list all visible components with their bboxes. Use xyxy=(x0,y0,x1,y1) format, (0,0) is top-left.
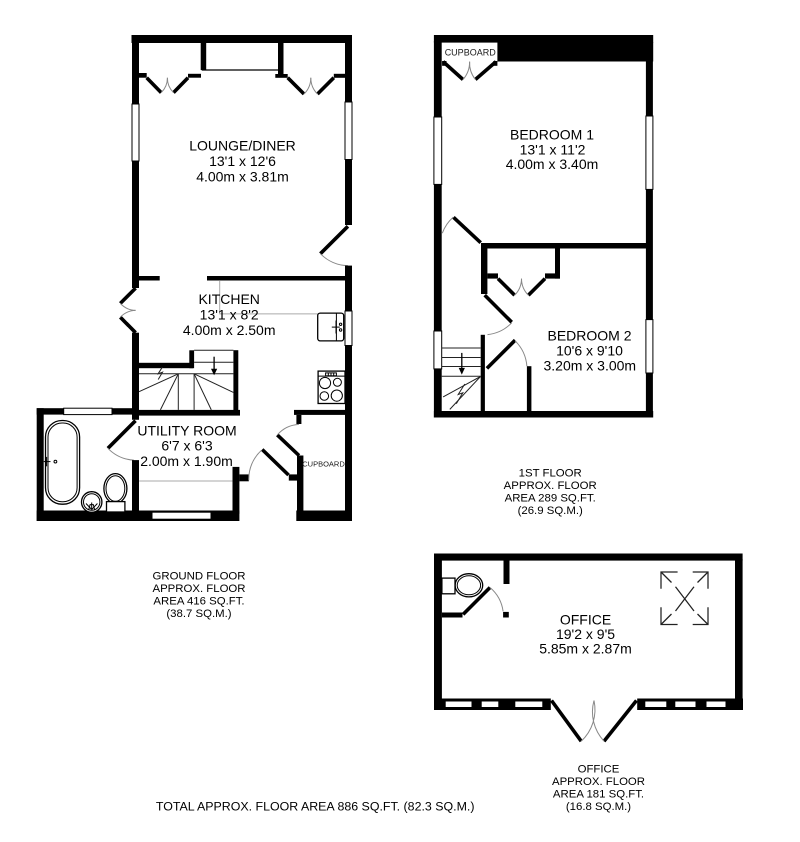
svg-text:APPROX. FLOOR: APPROX. FLOOR xyxy=(552,776,645,788)
svg-text:3.20m x 3.00m: 3.20m x 3.00m xyxy=(543,357,636,373)
svg-text:AREA 289 SQ.FT.: AREA 289 SQ.FT. xyxy=(505,493,596,505)
svg-text:13'1 x 8'2: 13'1 x 8'2 xyxy=(200,307,259,323)
svg-text:(16.8 SQ.M.): (16.8 SQ.M.) xyxy=(566,801,631,813)
svg-text:10'6 x 9'10: 10'6 x 9'10 xyxy=(556,342,623,358)
svg-text:4.00m x 2.50m: 4.00m x 2.50m xyxy=(183,322,276,338)
svg-text:13'1 x 12'6: 13'1 x 12'6 xyxy=(209,153,276,169)
svg-text:4.00m x 3.40m: 4.00m x 3.40m xyxy=(506,156,599,172)
svg-text:CUPBOARD: CUPBOARD xyxy=(445,48,497,58)
svg-text:5.85m x 2.87m: 5.85m x 2.87m xyxy=(539,640,632,656)
svg-text:6'7 x 6'3: 6'7 x 6'3 xyxy=(161,437,212,453)
svg-text:UTILITY ROOM: UTILITY ROOM xyxy=(137,422,236,438)
svg-text:(38.7 SQ.M.): (38.7 SQ.M.) xyxy=(166,608,231,620)
svg-text:4.00m x 3.81m: 4.00m x 3.81m xyxy=(196,169,289,185)
svg-text:KITCHEN: KITCHEN xyxy=(198,291,259,307)
svg-text:2.00m x 1.90m: 2.00m x 1.90m xyxy=(140,453,233,469)
svg-text:(26.9 SQ.M.): (26.9 SQ.M.) xyxy=(518,505,583,517)
svg-text:AREA 416 SQ.FT.: AREA 416 SQ.FT. xyxy=(153,595,244,607)
svg-text:TOTAL APPROX. FLOOR AREA 886 S: TOTAL APPROX. FLOOR AREA 886 SQ.FT. (82.… xyxy=(156,799,475,813)
svg-text:BEDROOM 2: BEDROOM 2 xyxy=(547,327,631,343)
svg-text:LOUNGE/DINER: LOUNGE/DINER xyxy=(189,138,296,154)
svg-text:13'1 x 11'2: 13'1 x 11'2 xyxy=(520,141,586,157)
svg-text:1ST FLOOR: 1ST FLOOR xyxy=(519,468,582,480)
svg-text:APPROX. FLOOR: APPROX. FLOOR xyxy=(504,480,597,492)
svg-text:APPROX. FLOOR: APPROX. FLOOR xyxy=(152,583,245,595)
svg-text:OFFICE: OFFICE xyxy=(578,763,620,775)
svg-text:AREA 181 SQ.FT.: AREA 181 SQ.FT. xyxy=(553,789,644,801)
svg-text:CUPBOARD: CUPBOARD xyxy=(302,459,345,468)
svg-text:BEDROOM 1: BEDROOM 1 xyxy=(510,126,594,142)
svg-text:GROUND FLOOR: GROUND FLOOR xyxy=(152,570,245,582)
